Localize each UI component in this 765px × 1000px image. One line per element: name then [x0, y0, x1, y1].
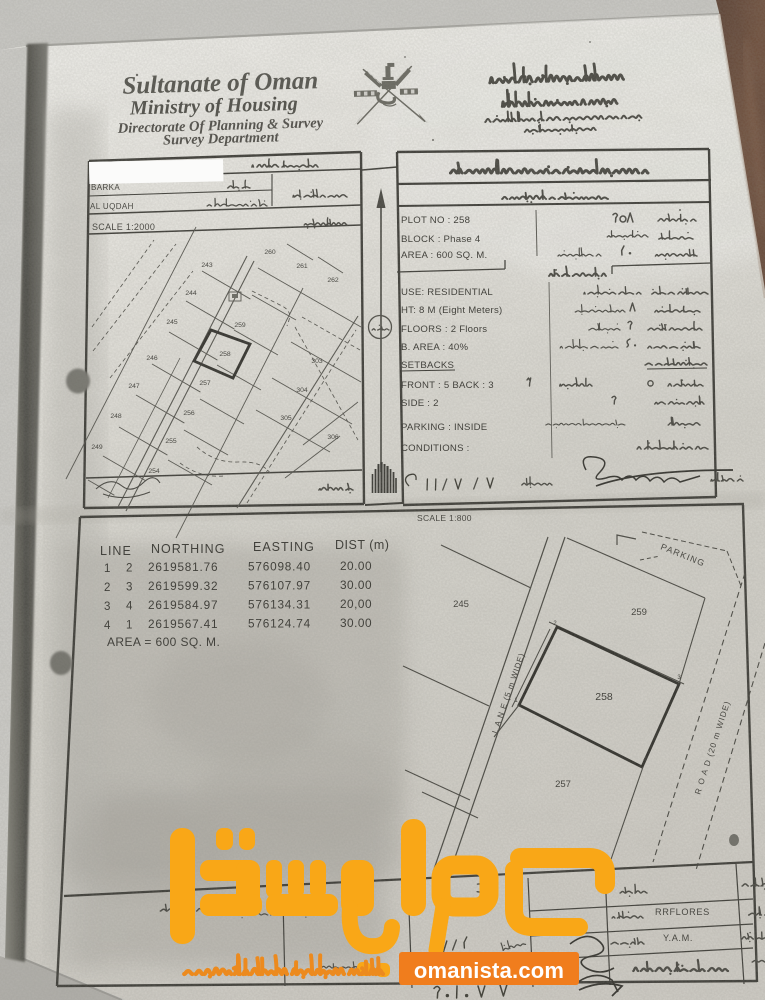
svg-text:omanista.com: omanista.com [414, 958, 564, 983]
